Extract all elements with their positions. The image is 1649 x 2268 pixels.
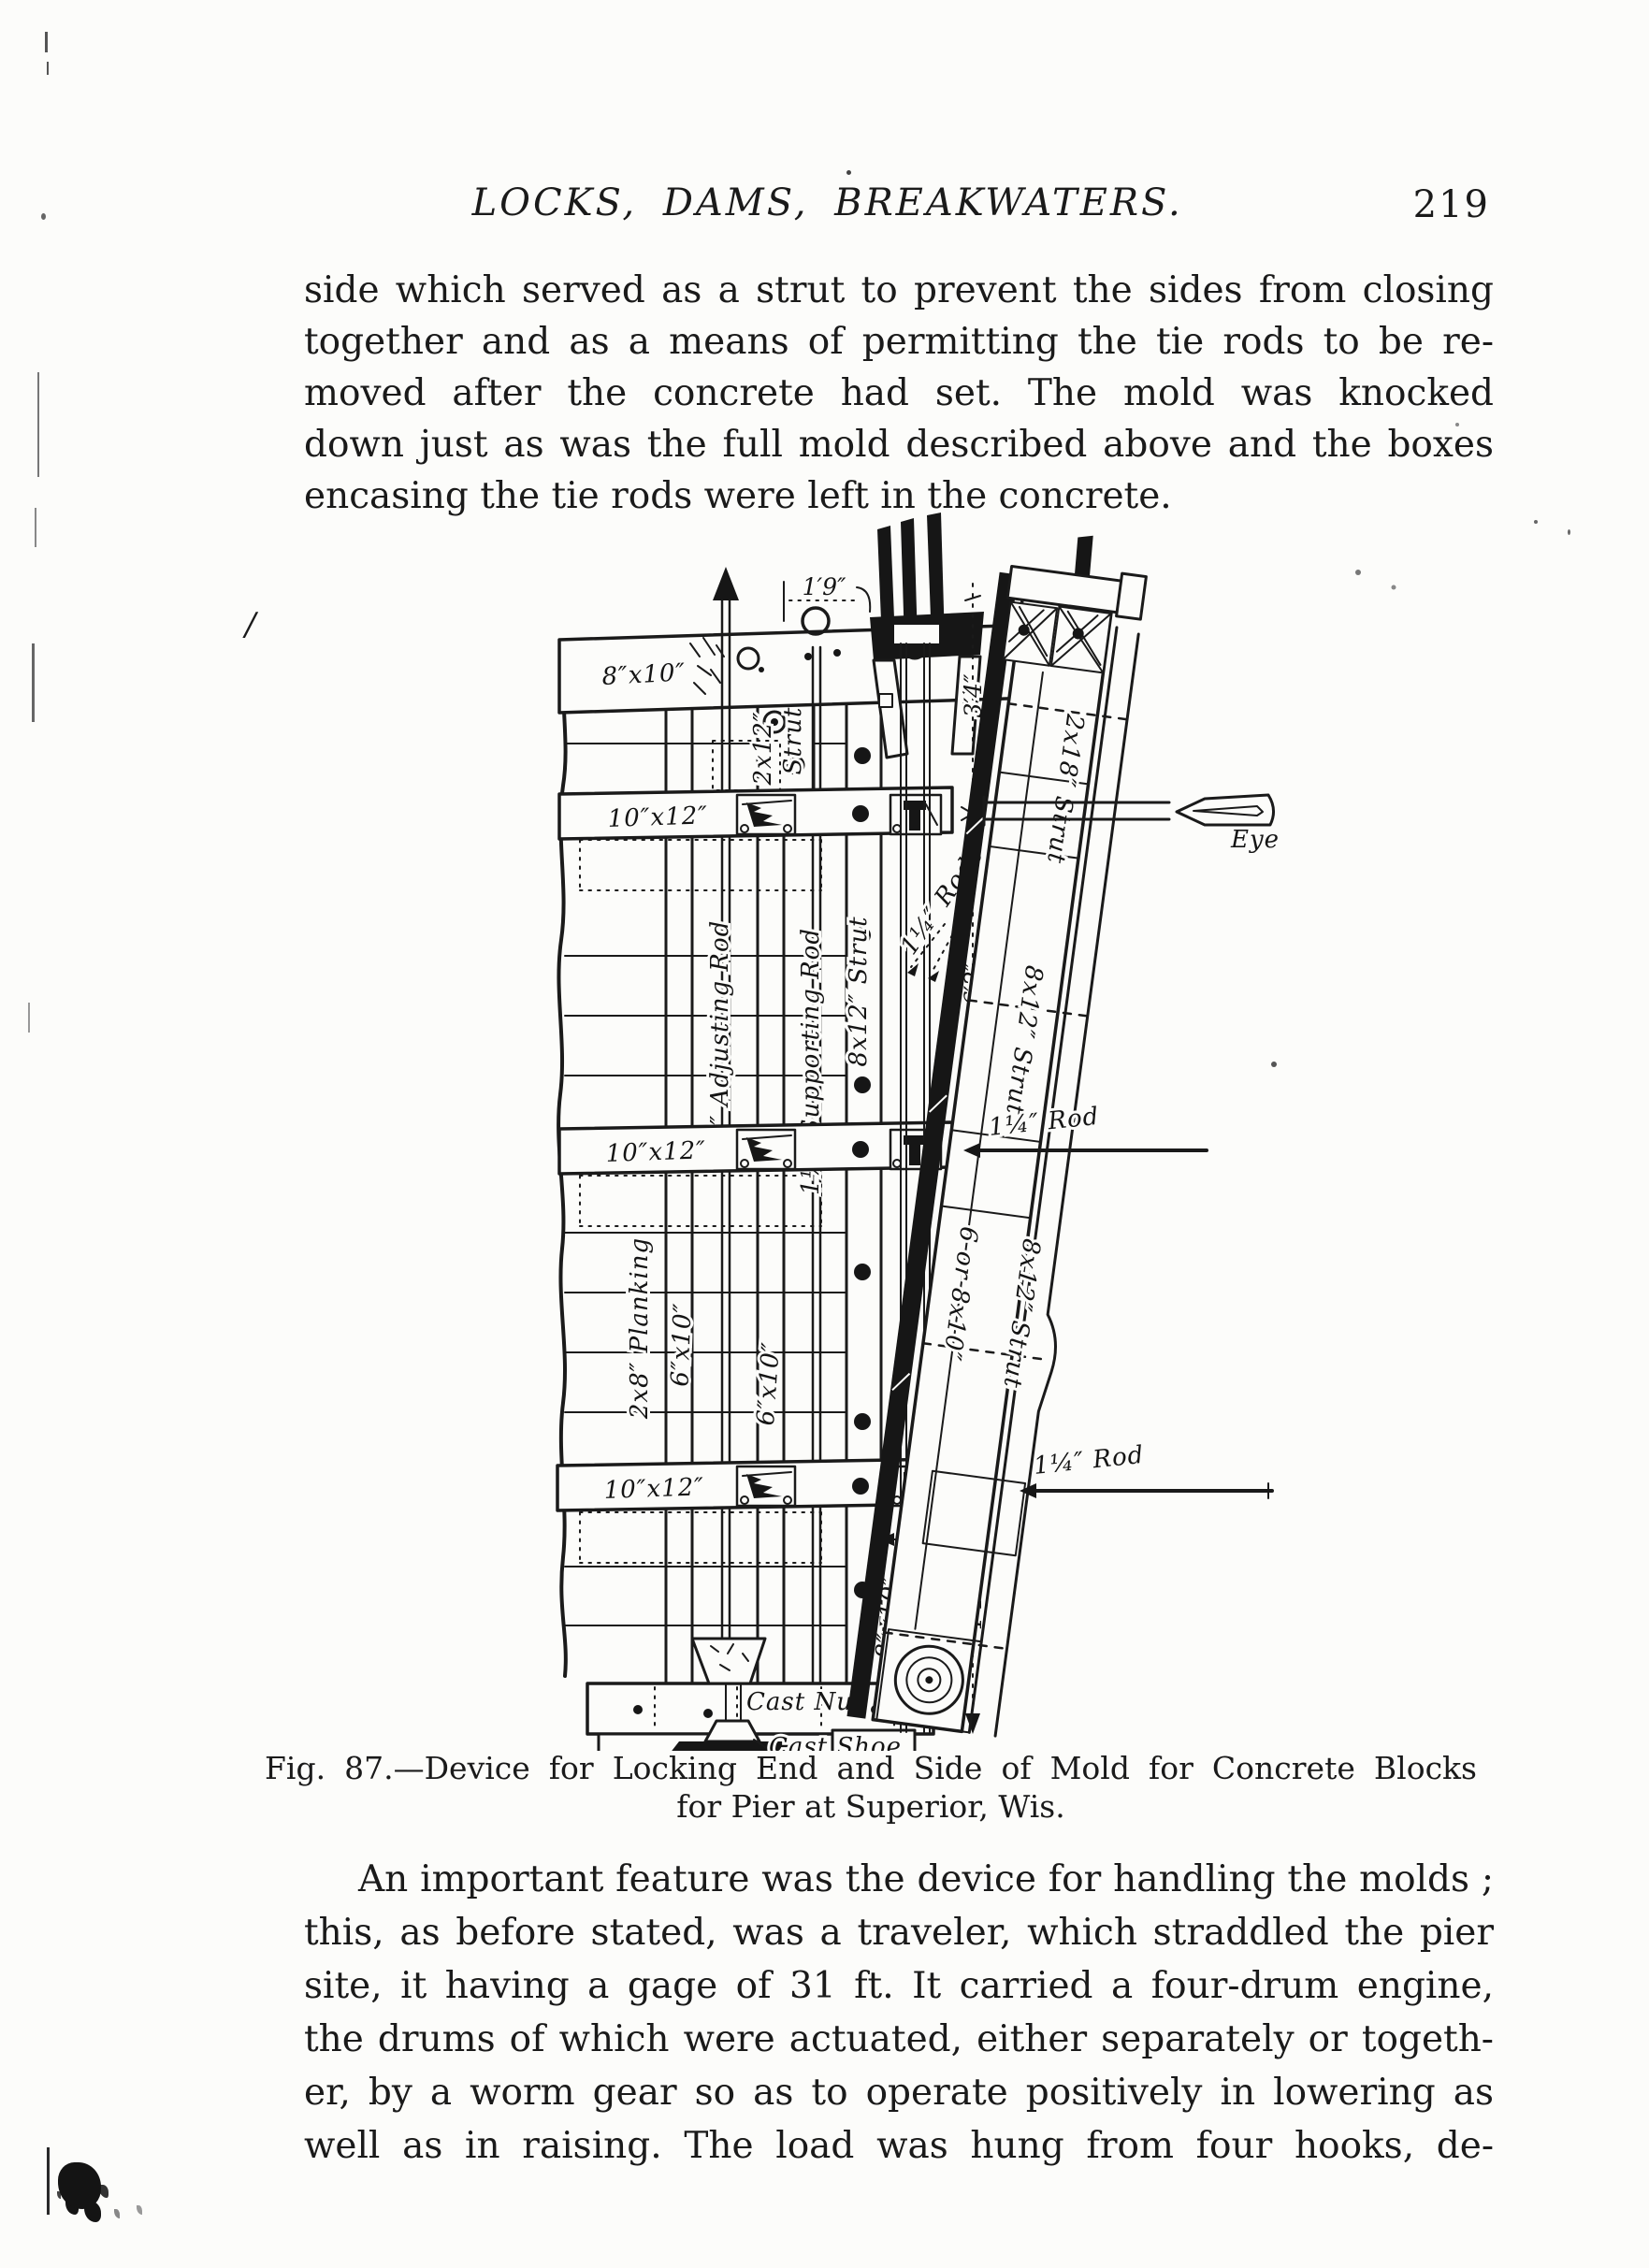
label-waler-2: 10″x12″ [605, 1136, 706, 1168]
scan-mark [28, 1003, 30, 1033]
figure-caption-line2: for Pier at Superior, Wis. [265, 1788, 1477, 1826]
label-waler-1: 10″x12″ [607, 802, 708, 833]
figure-caption-line1: Fig. 87.—Device for Locking End and Side… [265, 1749, 1477, 1788]
label-strut-2x12-size: 2x12″ [749, 711, 777, 786]
scan-mark [1392, 585, 1396, 590]
label-rod-1quarter-b: 1¼″ Rod [1033, 1441, 1146, 1481]
scan-mark [32, 643, 35, 722]
text-line: down just as was the full mold described… [304, 419, 1494, 470]
book-page: / LOCKS, DAMS, BREAKWATERS. 219 side whi… [0, 0, 1649, 2268]
page-number: 219 [1413, 183, 1490, 226]
scan-mark [1355, 570, 1361, 575]
text-line: er, by a worm gear so as to operate posi… [304, 2066, 1494, 2119]
scan-mark [37, 372, 39, 477]
text-line: site, it having a gage of 31 ft. It carr… [304, 1959, 1494, 2013]
figure-caption: Fig. 87.—Device for Locking End and Side… [265, 1749, 1477, 1826]
label-planking-2x8: 2x8″ Planking [626, 1237, 654, 1420]
figure-drawing: 2x12″ Strut 8″x10″ 1′9″ 1¼″ Adjusting Ro… [505, 503, 1454, 1751]
scan-mark [47, 62, 49, 75]
label-cast-nut: Cast Nut [746, 1688, 863, 1716]
label-eye: Eye [1230, 826, 1280, 854]
scan-mark [41, 213, 46, 220]
scan-mark [35, 508, 36, 547]
page-header: LOCKS, DAMS, BREAKWATERS. 219 [304, 181, 1494, 230]
scan-mark [1568, 529, 1570, 535]
scan-mark [45, 32, 48, 52]
text-line: well as in raising. The load was hung fr… [304, 2119, 1494, 2173]
paragraph-top: side which served as a strut to prevent … [304, 265, 1494, 522]
label-plank-6x10-a: 6″x10″ [666, 1302, 697, 1387]
scan-mark [1534, 520, 1538, 524]
text-line: this, as before stated, was a traveler, … [304, 1906, 1494, 1959]
label-plank-6x10-b: 6″x10″ [752, 1341, 786, 1427]
label-dim-1ft9: 1′9″ [803, 573, 846, 600]
text-line: An important feature was the device for … [304, 1853, 1494, 1906]
scan-stray-slash: / [245, 606, 255, 643]
paragraph-bottom: An important feature was the device for … [304, 1853, 1494, 2173]
text-line: the drums of which were actuated, either… [304, 2013, 1494, 2066]
label-strut-8x12-left: 8x12″ Strut [845, 916, 873, 1066]
text-line: moved after the concrete had set. The mo… [304, 368, 1494, 419]
scan-mark [47, 2147, 50, 2215]
ink-blot [58, 2162, 101, 2209]
running-title: LOCKS, DAMS, BREAKWATERS. [472, 181, 1183, 224]
text-line: side which served as a strut to prevent … [304, 265, 1494, 316]
text-line: together and as a means of permitting th… [304, 316, 1494, 368]
scan-mark [846, 170, 851, 175]
label-rail-8x10: 8″x10″ [601, 658, 687, 691]
label-strut-2x12-word: Strut [779, 707, 807, 775]
label-waler-3: 10″x12″ [603, 1473, 704, 1505]
scan-mark [1271, 1062, 1277, 1067]
